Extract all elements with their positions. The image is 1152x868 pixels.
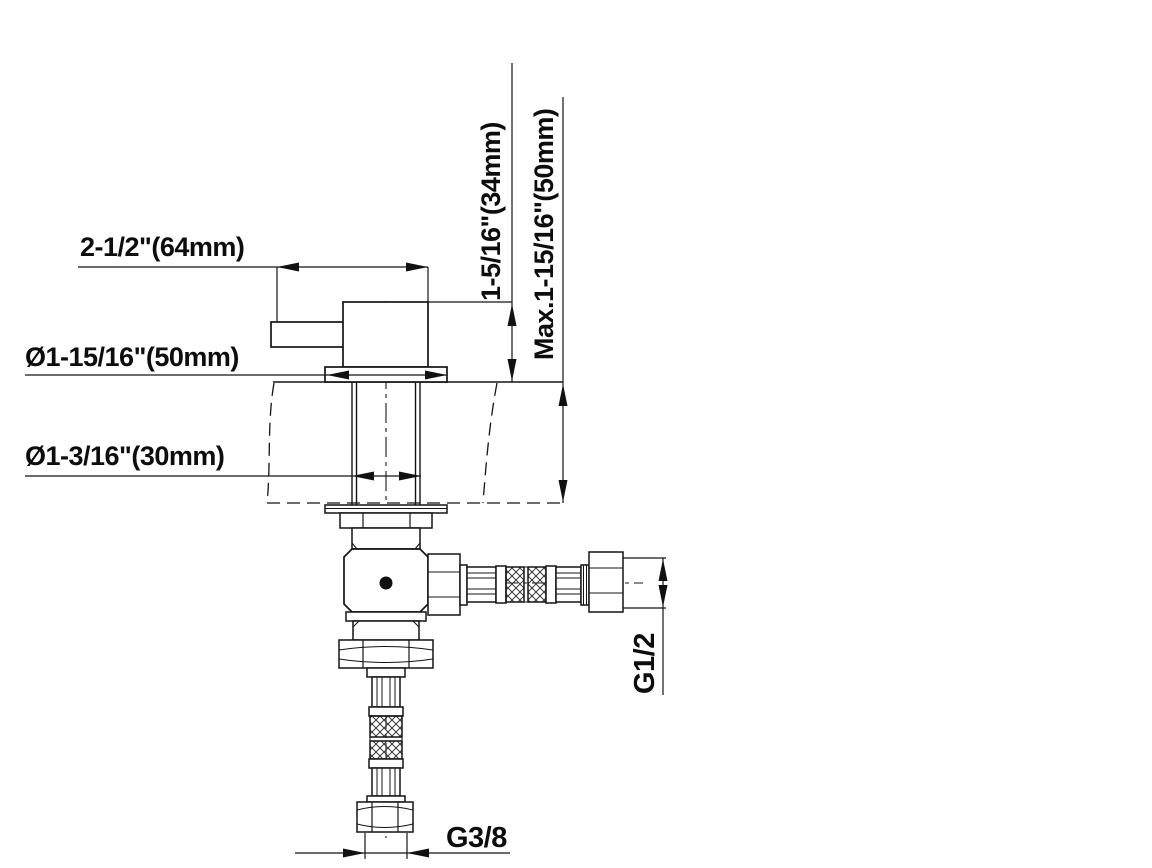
dimension-label-max-deck-thickness: Max.1-15/16"(50mm) bbox=[530, 109, 560, 360]
dimension-label-shank-diameter: Ø1-3/16"(30mm) bbox=[25, 442, 224, 472]
dimension-label-handle-width: 2-1/2"(64mm) bbox=[80, 233, 244, 263]
dimension-label-flange-diameter: Ø1-15/16"(50mm) bbox=[25, 343, 239, 373]
valve-center-dot bbox=[380, 577, 393, 590]
faucet-handle bbox=[271, 322, 344, 347]
mounting-nut bbox=[340, 513, 432, 528]
faucet-technical-drawing bbox=[0, 0, 1152, 868]
dimension-label-body-height: 1-5/16"(34mm) bbox=[477, 122, 507, 301]
washer bbox=[325, 505, 447, 513]
dimension-label-hose-thread: G1/2 bbox=[630, 633, 662, 694]
tee-valve-body bbox=[344, 549, 440, 612]
faucet-body bbox=[343, 302, 428, 367]
technical-drawing-page: 2-1/2"(64mm) 1-5/16"(34mm) Max.1-15/16"(… bbox=[0, 0, 1152, 868]
shank-lower bbox=[352, 528, 420, 549]
hose-vertical bbox=[339, 612, 433, 832]
dimension-label-supply-thread: G3/8 bbox=[446, 823, 507, 855]
